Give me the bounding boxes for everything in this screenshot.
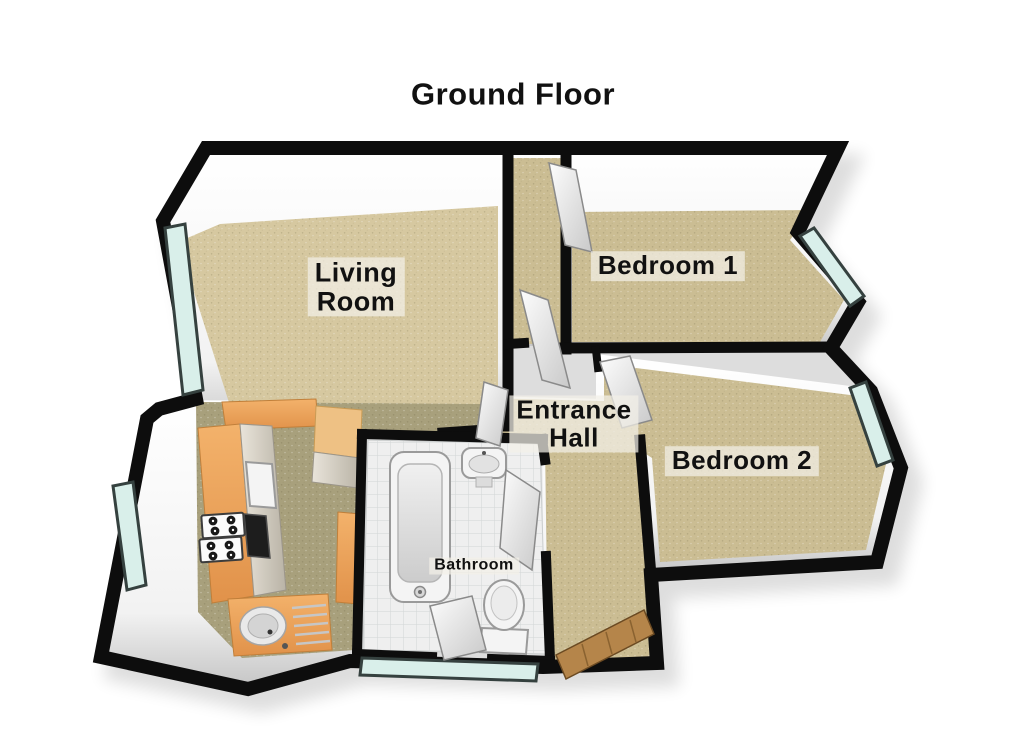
kitchen-worktop-return: [314, 406, 362, 458]
gas-hob: [199, 513, 245, 563]
room-label-bedroom1: Bedroom 1: [591, 251, 745, 281]
toilet: [480, 580, 528, 654]
cabinet-door: [246, 462, 276, 508]
room-label-bedroom2: Bedroom 2: [665, 446, 819, 476]
entrance-hall-label-line2: Hall: [516, 424, 631, 452]
floor-plan-page: Ground Floor Living Room Bedroom 1 Bedro…: [0, 0, 1024, 745]
room-label-bathroom: Bathroom: [429, 558, 519, 575]
room-label-living-room: Living Room: [308, 257, 405, 316]
living-room-label-line1: Living: [315, 258, 398, 287]
room-label-entrance-hall: Entrance Hall: [509, 395, 638, 452]
kitchen-unit-face: [312, 452, 360, 488]
living-room-label-line2: Room: [315, 287, 398, 316]
bathtub: [390, 452, 450, 602]
plan-title: Ground Floor: [404, 78, 622, 113]
oven: [244, 514, 270, 558]
entrance-hall-label-line1: Entrance: [516, 396, 631, 424]
